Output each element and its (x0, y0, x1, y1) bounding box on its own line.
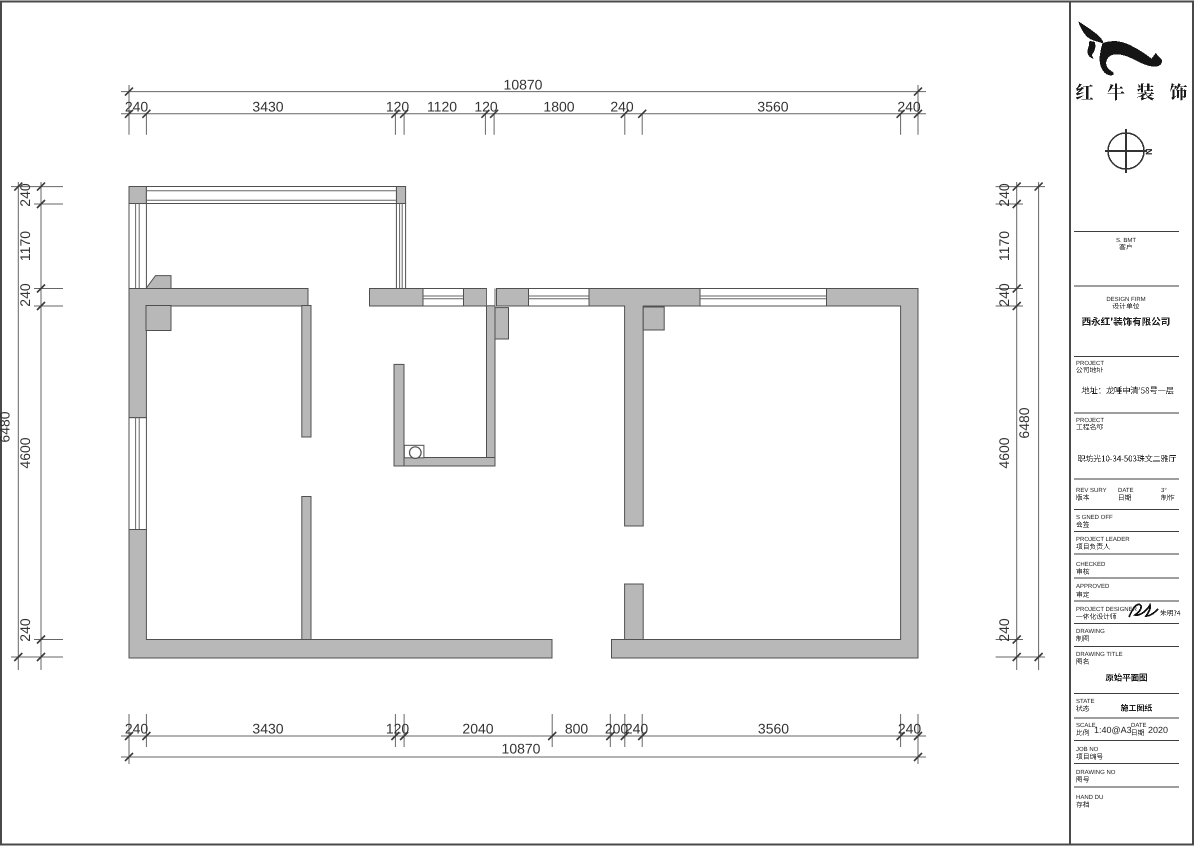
svg-text:PROJECT DESIGNER: PROJECT DESIGNER (1076, 606, 1138, 613)
svg-text:S GNED OFF: S GNED OFF (1076, 514, 1113, 521)
svg-text:10870: 10870 (504, 77, 543, 93)
svg-text:240: 240 (996, 283, 1012, 307)
svg-text:240: 240 (17, 283, 33, 307)
svg-text:240: 240 (610, 98, 634, 114)
svg-text:240: 240 (625, 721, 649, 737)
svg-text:DRAWING: DRAWING (1076, 628, 1105, 635)
svg-text:2020: 2020 (1148, 725, 1168, 735)
svg-text:10870: 10870 (502, 741, 541, 757)
svg-text:6480: 6480 (1016, 407, 1032, 438)
svg-text:SCALE: SCALE (1076, 722, 1096, 729)
svg-text:REV SURY: REV SURY (1076, 487, 1107, 494)
svg-text:240: 240 (125, 721, 149, 737)
svg-text:1800: 1800 (543, 98, 574, 114)
svg-text:CHECKED: CHECKED (1076, 561, 1106, 568)
svg-text:800: 800 (565, 721, 589, 737)
svg-text:120: 120 (474, 98, 498, 114)
svg-text:240: 240 (17, 183, 33, 207)
svg-text:S. BMT: S. BMT (1116, 237, 1136, 244)
svg-text:JOB NO: JOB NO (1076, 746, 1099, 753)
svg-text:STATE: STATE (1076, 698, 1094, 705)
svg-text:1170: 1170 (17, 231, 33, 261)
svg-text:1120: 1120 (427, 98, 457, 114)
svg-text:3°: 3° (1161, 487, 1167, 494)
svg-text:1:40@A3: 1:40@A3 (1094, 725, 1132, 735)
svg-text:PROJECT LEADER: PROJECT LEADER (1076, 536, 1130, 543)
svg-text:120: 120 (386, 721, 410, 737)
svg-text:PROJECT: PROJECT (1076, 360, 1104, 367)
svg-text:DESIGN FIRM: DESIGN FIRM (1106, 296, 1145, 303)
svg-text:DATE: DATE (1131, 722, 1147, 729)
svg-text:240: 240 (897, 98, 921, 114)
svg-text:3430: 3430 (252, 98, 283, 114)
svg-text:3560: 3560 (757, 98, 788, 114)
svg-text:4600: 4600 (17, 437, 33, 468)
svg-text:PROJECT: PROJECT (1076, 417, 1104, 424)
svg-text:1170: 1170 (996, 231, 1012, 261)
svg-text:2040: 2040 (462, 721, 493, 737)
svg-text:240: 240 (125, 98, 149, 114)
svg-text:240: 240 (996, 618, 1012, 642)
svg-text:DATE: DATE (1118, 487, 1134, 494)
svg-text:240: 240 (17, 618, 33, 642)
svg-text:APPROVED: APPROVED (1076, 583, 1110, 590)
svg-text:DRAWING NO: DRAWING NO (1076, 769, 1116, 776)
svg-text:6480: 6480 (0, 411, 13, 442)
svg-text:N: N (1144, 149, 1154, 156)
svg-text:DRAWING TITLE: DRAWING TITLE (1076, 651, 1123, 658)
svg-text:3430: 3430 (252, 721, 283, 737)
svg-text:240: 240 (898, 721, 922, 737)
svg-text:240: 240 (996, 183, 1012, 207)
svg-text:120: 120 (386, 98, 410, 114)
svg-text:HAND DU: HAND DU (1076, 794, 1103, 801)
svg-text:3560: 3560 (758, 721, 789, 737)
svg-text:4600: 4600 (996, 437, 1012, 468)
